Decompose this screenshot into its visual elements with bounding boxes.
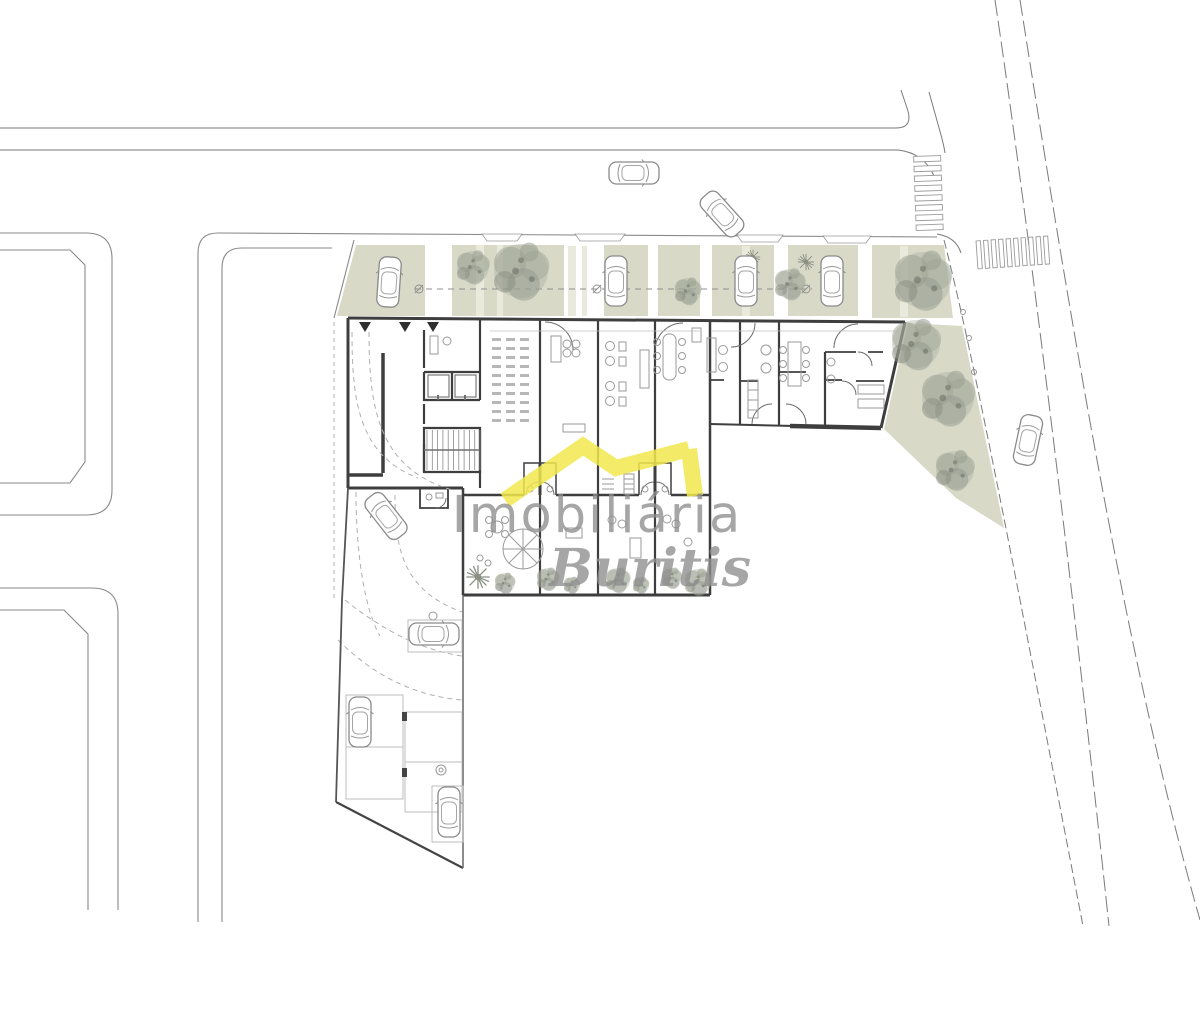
block-inner (0, 250, 85, 483)
car (409, 621, 459, 648)
crosswalk-bar (991, 240, 997, 268)
crosswalk-bar (1013, 238, 1019, 266)
shelf-dash (520, 392, 529, 395)
shelf-dash (506, 365, 515, 368)
shelf-dash (506, 374, 515, 377)
crosswalk-bar (976, 241, 982, 269)
crosswalk-rung (914, 156, 941, 162)
site-plan-page: Imobiliária Buritis (0, 0, 1200, 1010)
shelf-dash (492, 401, 501, 404)
watermark-line1: Imobiliária (452, 486, 742, 545)
car (436, 787, 463, 837)
shelf-dash (520, 356, 529, 359)
car (733, 256, 760, 306)
ramp-symbol (436, 765, 446, 775)
block-inner (0, 610, 88, 910)
shelf-dash (492, 356, 501, 359)
shelf-dash (492, 410, 501, 413)
wheel-stop (402, 768, 407, 777)
corner-curb (929, 92, 945, 153)
shelf-dash (506, 392, 515, 395)
shelf-dash (506, 338, 515, 341)
shelf-dash (506, 347, 515, 350)
shelf-dash (492, 383, 501, 386)
top-road-upper-line (0, 90, 909, 128)
shelf-dash (492, 392, 501, 395)
shelf-dash (506, 356, 515, 359)
car (1010, 413, 1047, 468)
top-road-lower-line (0, 150, 934, 176)
block-outer (0, 233, 112, 515)
crosswalk-rung (916, 224, 943, 230)
shelf-dash (520, 347, 529, 350)
crosswalk-rung (915, 195, 942, 201)
crosswalk-vertical (914, 156, 944, 231)
crosswalk-bar (1036, 237, 1042, 265)
street-curb (222, 248, 242, 922)
shelf-dash (520, 401, 529, 404)
crosswalk-bar (1043, 236, 1049, 264)
crosswalk-rung (915, 185, 942, 191)
car (603, 256, 630, 306)
right-road-lane-line (995, 0, 1109, 926)
shelf-dash (520, 374, 529, 377)
crosswalk-bar (1006, 239, 1012, 267)
ramp-symbol (439, 768, 443, 772)
shelf-dash (520, 338, 529, 341)
shelf-dash (520, 419, 529, 422)
watermark-line2: Buritis (547, 538, 751, 599)
shelf-dash (492, 374, 501, 377)
crosswalk-rung (915, 205, 942, 211)
shelf-dash (506, 383, 515, 386)
block-outer (0, 588, 118, 910)
street-curb (198, 233, 218, 922)
shelf-dash (520, 410, 529, 413)
crosswalk-bar (983, 240, 989, 268)
crosswalk-bar (998, 239, 1004, 267)
shelf-dash (492, 365, 501, 368)
crosswalk-bar (1028, 237, 1034, 265)
car (695, 186, 749, 241)
tree (466, 565, 489, 588)
tree (798, 254, 814, 270)
car (819, 256, 846, 306)
shelf-dash (506, 419, 515, 422)
floor-plan-drawing: Imobiliária Buritis (0, 0, 1200, 1010)
shelf-dash (492, 419, 501, 422)
crosswalk-bar (1021, 238, 1027, 266)
shelf-dash (520, 365, 529, 368)
wheel-stop (402, 712, 407, 721)
car (360, 488, 412, 544)
shelf-dash (506, 401, 515, 404)
shelf-dash (492, 338, 501, 341)
shelf-dash (492, 347, 501, 350)
crosswalk-rung (914, 165, 941, 171)
crosswalk-horizontal (976, 236, 1050, 269)
shelf-dash (520, 383, 529, 386)
crosswalk-rung (914, 175, 941, 181)
shelf-dash (506, 410, 515, 413)
marker (429, 612, 437, 620)
car (347, 697, 374, 747)
right-road-east-line (1020, 0, 1200, 920)
crosswalk-rung (916, 214, 943, 220)
car (609, 160, 659, 187)
